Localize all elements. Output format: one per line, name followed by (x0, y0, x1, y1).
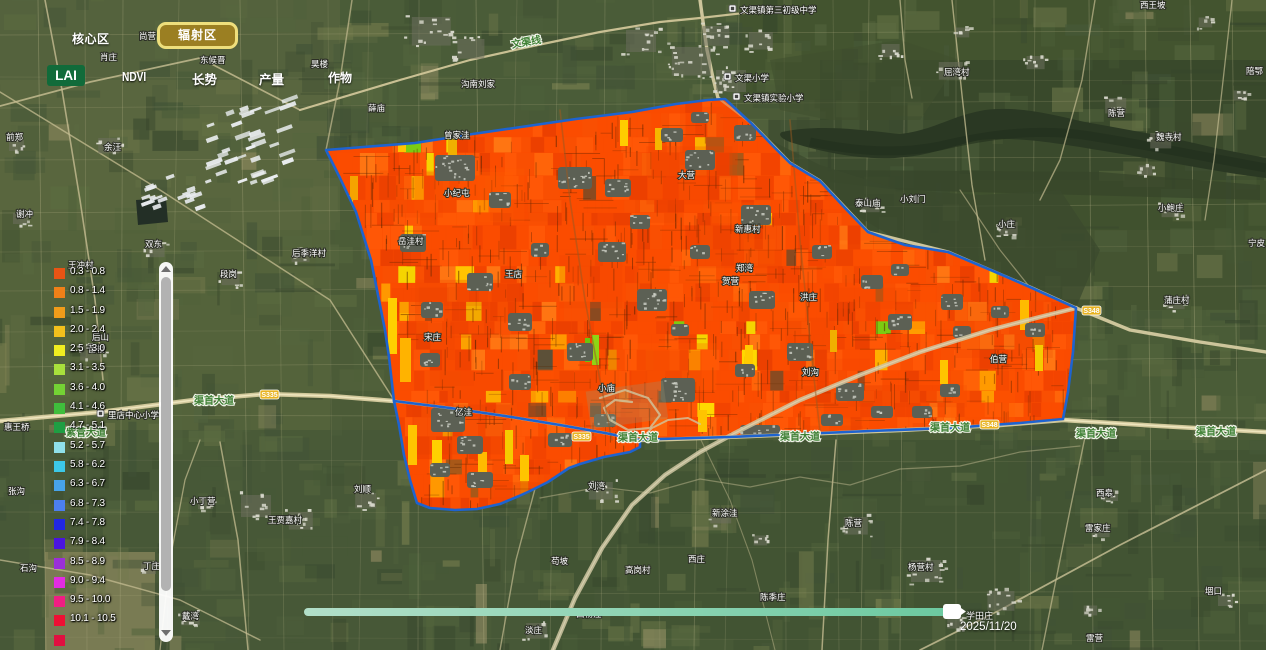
svg-text:小丁营: 小丁营 (190, 496, 216, 506)
svg-text:刘沟: 刘沟 (802, 367, 819, 377)
svg-text:段岗: 段岗 (220, 269, 237, 279)
svg-text:小庙: 小庙 (598, 383, 616, 393)
svg-text:伯营: 伯营 (990, 354, 1007, 364)
svg-text:郑湾: 郑湾 (736, 263, 754, 273)
svg-text:小庄: 小庄 (998, 219, 1016, 229)
svg-text:刘湾: 刘湾 (588, 481, 606, 491)
svg-text:双东: 双东 (145, 239, 162, 249)
svg-text:沟南刘家: 沟南刘家 (461, 79, 496, 89)
svg-text:刘顺: 刘顺 (354, 484, 372, 494)
svg-text:陈营: 陈营 (845, 518, 862, 528)
svg-text:S348: S348 (1083, 308, 1099, 315)
svg-text:蒲庄村: 蒲庄村 (1164, 295, 1190, 305)
svg-text:渠首大道: 渠首大道 (193, 394, 234, 407)
svg-text:泰山庙: 泰山庙 (855, 198, 881, 208)
svg-text:文渠镇实验小学: 文渠镇实验小学 (744, 93, 804, 103)
svg-text:王贾嘉村: 王贾嘉村 (268, 515, 303, 525)
svg-text:丁庄: 丁庄 (143, 561, 161, 571)
svg-text:东候晋: 东候晋 (200, 55, 226, 65)
svg-text:里店中心小学: 里店中心小学 (108, 410, 160, 420)
svg-text:新惠村: 新惠村 (735, 224, 761, 234)
svg-text:张沟: 张沟 (8, 486, 25, 496)
svg-text:尚营: 尚营 (139, 31, 156, 41)
svg-text:淡庄: 淡庄 (525, 625, 543, 635)
svg-text:魏寺村: 魏寺村 (1156, 132, 1182, 142)
svg-text:雷营: 雷营 (1086, 633, 1103, 643)
svg-text:雷家庄: 雷家庄 (1085, 523, 1111, 533)
svg-text:新涂洼: 新涂洼 (712, 508, 738, 518)
svg-text:S335: S335 (261, 392, 277, 399)
svg-text:高岗村: 高岗村 (625, 565, 651, 575)
svg-text:陪鄂: 陪鄂 (1246, 66, 1264, 76)
svg-text:小纪屯: 小纪屯 (444, 188, 470, 198)
svg-text:渠首大道: 渠首大道 (1075, 427, 1116, 440)
svg-text:小鲍庄: 小鲍庄 (1158, 203, 1184, 213)
svg-text:余汪: 余汪 (104, 142, 122, 152)
svg-text:薛庙: 薛庙 (368, 103, 386, 113)
svg-text:西庄: 西庄 (688, 554, 706, 564)
svg-text:堌口: 堌口 (1205, 586, 1222, 596)
svg-text:西皋: 西皋 (1096, 488, 1114, 498)
svg-text:小刘门: 小刘门 (900, 194, 926, 204)
svg-text:宋庄: 宋庄 (424, 332, 442, 342)
svg-text:曾家洼: 曾家洼 (444, 130, 470, 140)
svg-text:肖庄: 肖庄 (100, 52, 118, 62)
svg-text:后季洋村: 后季洋村 (292, 248, 327, 258)
svg-text:惠王桥: 惠王桥 (4, 422, 30, 432)
svg-text:洪庄: 洪庄 (800, 292, 818, 302)
svg-text:谢冲: 谢冲 (16, 209, 33, 219)
svg-text:昊楼: 昊楼 (311, 59, 329, 69)
svg-text:渠首大道: 渠首大道 (779, 430, 820, 443)
svg-text:大营: 大营 (678, 170, 695, 180)
svg-text:亿洼: 亿洼 (455, 407, 473, 417)
svg-text:岳洼村: 岳洼村 (398, 236, 424, 246)
svg-text:苟坡: 苟坡 (551, 556, 569, 566)
svg-text:S348: S348 (981, 422, 997, 429)
svg-text:宁皮: 宁皮 (1248, 238, 1266, 248)
svg-text:王店: 王店 (505, 269, 523, 279)
svg-text:西王坡: 西王坡 (1140, 0, 1166, 10)
svg-text:渠首大道: 渠首大道 (617, 431, 658, 444)
svg-text:屈湾村: 屈湾村 (944, 67, 970, 77)
svg-text:石沟: 石沟 (20, 563, 37, 573)
svg-text:渠首大道: 渠首大道 (1195, 425, 1236, 438)
svg-text:陈营: 陈营 (1108, 108, 1125, 118)
svg-text:渠首大道: 渠首大道 (929, 421, 970, 434)
svg-text:前郑: 前郑 (6, 132, 24, 142)
svg-text:杨营村: 杨营村 (908, 562, 934, 572)
svg-text:戴湾: 戴湾 (182, 611, 200, 621)
svg-text:S335: S335 (573, 434, 589, 441)
svg-text:陈季庄: 陈季庄 (760, 592, 786, 602)
svg-text:文渠镇第三初级中学: 文渠镇第三初级中学 (740, 5, 817, 15)
svg-text:贺营: 贺营 (722, 276, 739, 286)
svg-text:文渠小学: 文渠小学 (735, 73, 770, 83)
